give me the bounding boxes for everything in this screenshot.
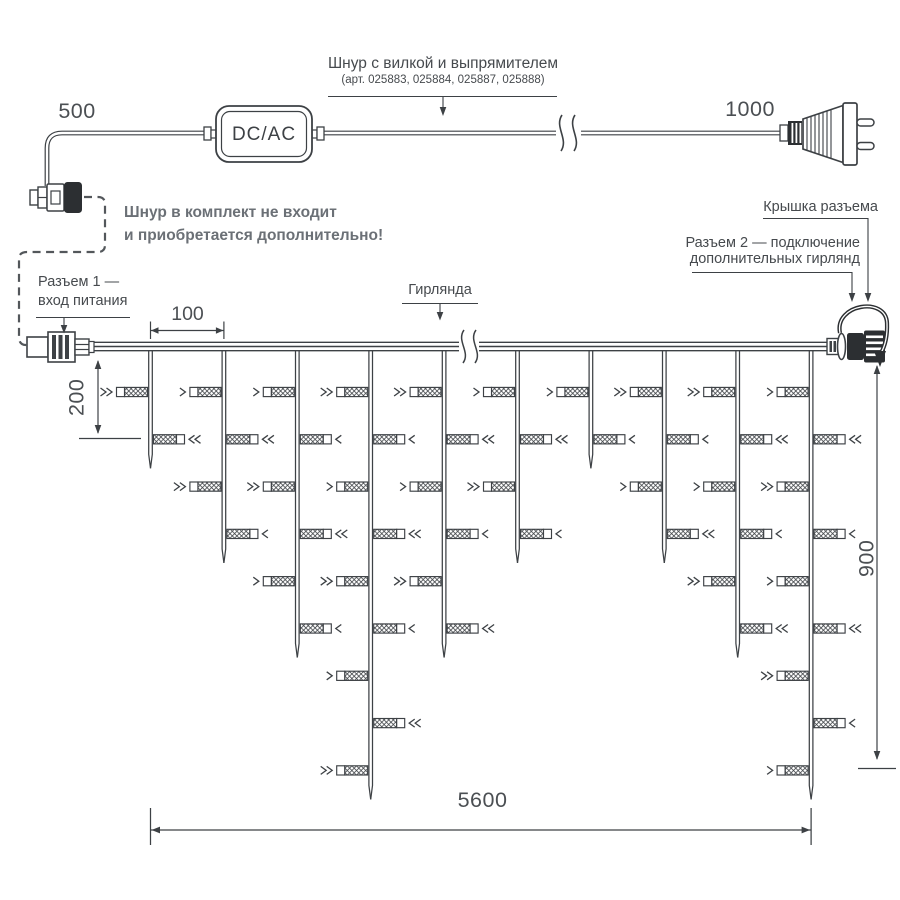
led-bulb bbox=[547, 387, 588, 396]
led-bulb bbox=[767, 387, 808, 396]
led-bulb bbox=[394, 387, 441, 396]
led-bulb bbox=[374, 435, 415, 444]
garland-output-connector bbox=[827, 306, 887, 367]
light-direction-chevron bbox=[483, 625, 489, 633]
light-direction-chevron bbox=[776, 530, 782, 538]
garland-drop bbox=[101, 351, 201, 468]
power-plug bbox=[780, 103, 874, 165]
light-direction-chevron bbox=[327, 577, 333, 585]
led-bulb bbox=[741, 624, 788, 633]
light-direction-chevron bbox=[547, 388, 553, 396]
led-bulb bbox=[447, 529, 488, 538]
light-direction-chevron bbox=[262, 530, 268, 538]
light-direction-chevron bbox=[782, 625, 788, 633]
led-bulb bbox=[253, 577, 294, 586]
light-direction-chevron bbox=[474, 388, 480, 396]
led-bulb bbox=[767, 577, 808, 586]
light-direction-chevron bbox=[107, 388, 113, 396]
light-direction-chevron bbox=[620, 483, 626, 491]
garland-drop bbox=[394, 351, 494, 658]
led-bulb bbox=[101, 387, 148, 396]
led-bulb bbox=[447, 624, 494, 633]
light-direction-chevron bbox=[709, 530, 715, 538]
wire-break-symbol bbox=[462, 330, 478, 363]
garland-wire bbox=[90, 342, 827, 350]
dcac-label: DC/AC bbox=[216, 124, 312, 146]
garland-drop bbox=[321, 351, 421, 799]
led-bulb bbox=[594, 435, 635, 444]
led-bulb bbox=[321, 766, 368, 775]
cord-title-leader bbox=[328, 97, 557, 117]
connector1-label-line1: Разъем 1 — bbox=[38, 274, 119, 291]
light-direction-chevron bbox=[253, 483, 258, 491]
garland-title-leader bbox=[402, 304, 478, 321]
led-bulb bbox=[300, 435, 341, 444]
led-bulb bbox=[694, 482, 735, 491]
garland-drop bbox=[247, 351, 347, 658]
light-direction-chevron bbox=[856, 435, 862, 443]
dim-200-value: 200 bbox=[65, 365, 90, 429]
light-direction-chevron bbox=[489, 435, 495, 443]
light-direction-chevron bbox=[694, 577, 700, 585]
led-bulb bbox=[620, 482, 661, 491]
light-direction-chevron bbox=[253, 388, 258, 396]
dim-total-length bbox=[151, 808, 812, 845]
led-bulb bbox=[394, 577, 441, 586]
dim-900-value: 900 bbox=[855, 526, 880, 590]
led-bulb bbox=[227, 435, 274, 444]
led-bulb bbox=[767, 766, 808, 775]
light-direction-chevron bbox=[415, 719, 421, 727]
light-direction-chevron bbox=[694, 388, 700, 396]
light-direction-chevron bbox=[342, 530, 348, 538]
light-direction-chevron bbox=[761, 672, 767, 680]
light-direction-chevron bbox=[776, 625, 782, 633]
garland-drop bbox=[688, 351, 788, 658]
garland-drop bbox=[174, 351, 274, 563]
light-direction-chevron bbox=[489, 625, 495, 633]
light-direction-chevron bbox=[614, 388, 620, 396]
light-direction-chevron bbox=[247, 483, 253, 491]
light-direction-chevron bbox=[483, 435, 489, 443]
light-direction-chevron bbox=[856, 625, 862, 633]
light-direction-chevron bbox=[483, 530, 489, 538]
light-direction-chevron bbox=[268, 435, 274, 443]
light-direction-chevron bbox=[174, 483, 180, 491]
connector1-leader bbox=[36, 318, 130, 334]
light-direction-chevron bbox=[327, 672, 333, 680]
light-direction-chevron bbox=[400, 388, 406, 396]
cord-break-symbol bbox=[560, 115, 577, 151]
light-direction-chevron bbox=[850, 435, 856, 443]
dim-5600-value: 5600 bbox=[425, 788, 540, 813]
light-direction-chevron bbox=[262, 435, 268, 443]
led-bulb bbox=[253, 387, 294, 396]
light-direction-chevron bbox=[415, 530, 421, 538]
light-direction-chevron bbox=[189, 435, 195, 443]
led-bulb bbox=[327, 671, 368, 680]
garland-drop bbox=[547, 351, 635, 468]
light-direction-chevron bbox=[620, 388, 626, 396]
led-bulb bbox=[447, 435, 494, 444]
connector2-label-line2: дополнительных гирлянд bbox=[650, 251, 860, 268]
led-bulb bbox=[300, 529, 347, 538]
light-direction-chevron bbox=[409, 625, 415, 633]
light-direction-chevron bbox=[629, 435, 635, 443]
light-direction-chevron bbox=[101, 388, 107, 396]
cord-note-line1: Шнур в комплект не входит bbox=[124, 204, 337, 222]
light-direction-chevron bbox=[767, 483, 773, 491]
light-direction-chevron bbox=[409, 435, 415, 443]
light-direction-chevron bbox=[180, 483, 186, 491]
led-bulb bbox=[814, 529, 855, 538]
light-direction-chevron bbox=[400, 577, 406, 585]
cap-label: Крышка разъема bbox=[728, 199, 878, 216]
led-bulb bbox=[321, 577, 368, 586]
garland-title: Гирлянда bbox=[380, 282, 500, 299]
light-direction-chevron bbox=[688, 388, 694, 396]
led-bulb bbox=[400, 482, 441, 491]
light-direction-chevron bbox=[394, 577, 400, 585]
led-bulb bbox=[180, 387, 221, 396]
light-direction-chevron bbox=[327, 483, 333, 491]
connector1-label-line2: вход питания bbox=[38, 293, 127, 310]
light-direction-chevron bbox=[180, 388, 186, 396]
diagram-linework bbox=[0, 0, 900, 900]
light-direction-chevron bbox=[767, 766, 773, 774]
led-bulb bbox=[174, 482, 221, 491]
led-bulb bbox=[667, 435, 708, 444]
light-direction-chevron bbox=[321, 388, 327, 396]
led-bulb bbox=[814, 624, 861, 633]
led-bulb bbox=[614, 387, 661, 396]
connector2-leader bbox=[692, 273, 855, 303]
garland-drop bbox=[614, 351, 714, 563]
light-direction-chevron bbox=[336, 435, 342, 443]
light-direction-chevron bbox=[694, 483, 700, 491]
led-bulb bbox=[374, 529, 421, 538]
garland-drop bbox=[761, 351, 861, 799]
light-direction-chevron bbox=[468, 483, 474, 491]
light-direction-chevron bbox=[327, 766, 333, 774]
connector2-label-line1: Разъем 2 — подключение bbox=[650, 235, 860, 252]
led-bulb bbox=[521, 529, 562, 538]
light-direction-chevron bbox=[556, 530, 562, 538]
light-direction-chevron bbox=[850, 625, 856, 633]
led-bulb bbox=[688, 577, 735, 586]
led-bulb bbox=[741, 529, 782, 538]
led-bulb bbox=[227, 529, 268, 538]
led-bulb bbox=[688, 387, 735, 396]
cord-note-line2: и приобретается дополнительно! bbox=[124, 227, 383, 245]
light-direction-chevron bbox=[394, 388, 400, 396]
icicle-garland-diagram: Шнур с вилкой и выпрямителем (арт. 02588… bbox=[0, 0, 900, 900]
cord-connector bbox=[30, 182, 82, 213]
light-direction-chevron bbox=[474, 483, 480, 491]
cord-title: Шнур с вилкой и выпрямителем bbox=[263, 55, 623, 73]
led-bulb bbox=[374, 719, 421, 728]
dim-100-value: 100 bbox=[152, 303, 223, 325]
light-direction-chevron bbox=[562, 435, 568, 443]
led-bulb bbox=[741, 435, 788, 444]
light-direction-chevron bbox=[703, 435, 709, 443]
led-bulb bbox=[300, 624, 341, 633]
garland-drops bbox=[101, 351, 862, 799]
led-bulb bbox=[521, 435, 568, 444]
led-bulb bbox=[374, 624, 415, 633]
led-bulb bbox=[814, 435, 861, 444]
led-bulb bbox=[474, 387, 515, 396]
garland-drop bbox=[468, 351, 568, 563]
light-direction-chevron bbox=[703, 530, 709, 538]
light-direction-chevron bbox=[767, 388, 773, 396]
led-bulb bbox=[468, 482, 515, 491]
light-direction-chevron bbox=[327, 388, 333, 396]
led-bulb bbox=[814, 719, 855, 728]
light-direction-chevron bbox=[336, 625, 342, 633]
light-direction-chevron bbox=[850, 719, 856, 727]
light-direction-chevron bbox=[409, 530, 415, 538]
led-bulb bbox=[327, 482, 368, 491]
light-direction-chevron bbox=[688, 577, 694, 585]
light-direction-chevron bbox=[195, 435, 201, 443]
garland-input-connector bbox=[27, 332, 94, 362]
power-cord bbox=[47, 115, 780, 186]
light-direction-chevron bbox=[321, 766, 327, 774]
light-direction-chevron bbox=[253, 577, 258, 585]
led-bulb bbox=[761, 671, 808, 680]
led-bulb bbox=[761, 482, 808, 491]
light-direction-chevron bbox=[776, 435, 782, 443]
led-bulb bbox=[247, 482, 294, 491]
light-direction-chevron bbox=[336, 530, 342, 538]
dim-500-value: 500 bbox=[40, 99, 114, 124]
light-direction-chevron bbox=[321, 577, 327, 585]
light-direction-chevron bbox=[556, 435, 562, 443]
light-direction-chevron bbox=[782, 435, 788, 443]
light-direction-chevron bbox=[767, 672, 773, 680]
light-direction-chevron bbox=[400, 483, 406, 491]
cord-articles: (арт. 025883, 025884, 025887, 025888) bbox=[263, 74, 623, 87]
light-direction-chevron bbox=[767, 577, 773, 585]
light-direction-chevron bbox=[761, 483, 767, 491]
led-bulb bbox=[154, 435, 201, 444]
led-bulb bbox=[321, 387, 368, 396]
led-bulb bbox=[667, 529, 714, 538]
light-direction-chevron bbox=[409, 719, 415, 727]
dim-1000-value: 1000 bbox=[706, 97, 794, 122]
